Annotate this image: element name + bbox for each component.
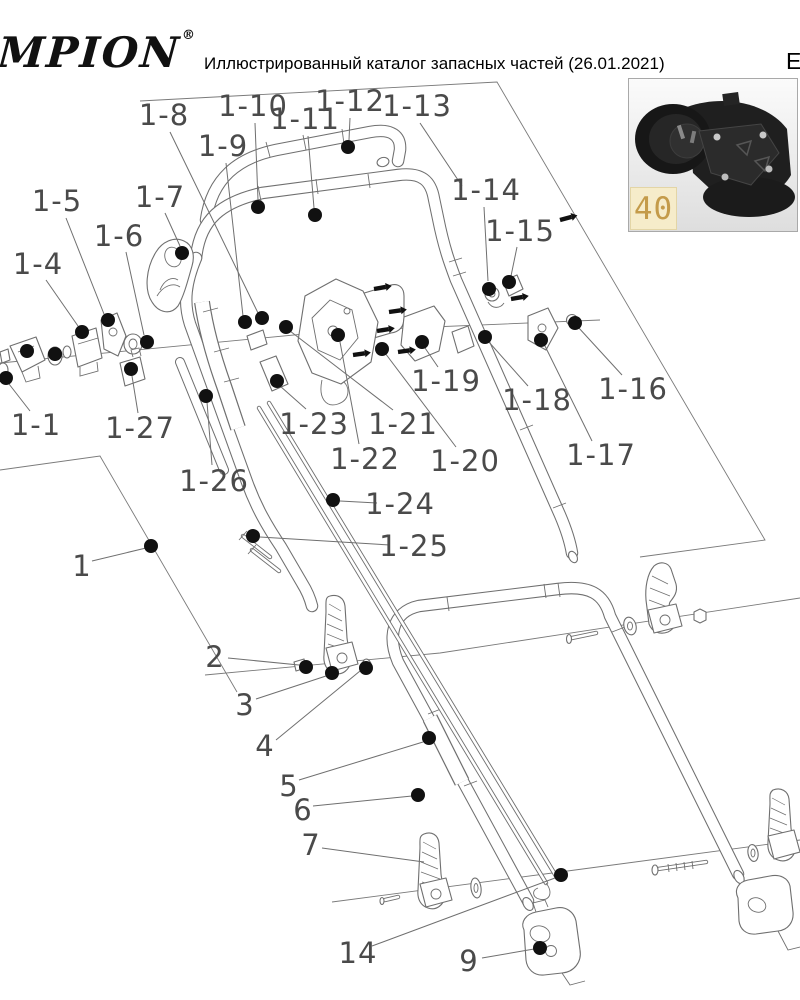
leader-line: [228, 658, 299, 665]
bottom-left-cam-assembly: [380, 833, 482, 909]
part-dot: [144, 539, 158, 553]
part-label: 1-21: [368, 407, 438, 441]
part-label: 6: [293, 793, 312, 827]
cable-bracket: [452, 326, 474, 353]
part-dot: [124, 362, 138, 376]
part-label: 1-22: [330, 442, 400, 476]
part-dot: [140, 335, 154, 349]
leader-line: [313, 796, 412, 806]
leader-line: [9, 384, 30, 411]
part-label: 1-7: [135, 180, 185, 214]
part-dot: [175, 246, 189, 260]
part-label: 1-15: [485, 214, 555, 248]
leader-line: [299, 742, 423, 780]
screw-icon: [559, 211, 578, 223]
part-dot: [101, 313, 115, 327]
grip-tube-end-cap: [376, 156, 390, 168]
part-label: 1-17: [566, 438, 636, 472]
part-dot: [554, 868, 568, 882]
part-label: 9: [459, 944, 478, 978]
part-dot: [75, 325, 89, 339]
part-9-bracket: [523, 900, 585, 985]
part-dot: [502, 275, 516, 289]
part-dot: [422, 731, 436, 745]
part-dot: [20, 344, 34, 358]
right-cam-assembly: [567, 563, 707, 644]
catalog-page: MPION® Иллюстрированный каталог запасных…: [0, 0, 800, 1000]
screw-tip: [522, 292, 529, 301]
part-dot: [415, 335, 429, 349]
exploded-diagram: 1-81-91-101-111-121-131-71-51-61-41-141-…: [0, 0, 800, 1000]
part-dot: [482, 282, 496, 296]
part-label: 1-6: [94, 219, 144, 253]
part-label: 14: [339, 936, 378, 970]
part-label: 3: [235, 688, 254, 722]
part-dot: [246, 529, 260, 543]
part-label: 1-23: [279, 407, 349, 441]
part-dot: [341, 140, 355, 154]
washer: [747, 844, 760, 862]
part-dot: [375, 342, 389, 356]
part-dot: [534, 333, 548, 347]
part-label: 1-25: [379, 529, 449, 563]
part-dot: [359, 661, 373, 675]
part-dot: [299, 660, 313, 674]
carriage-bolt-head: [652, 865, 658, 875]
part-dot: [326, 493, 340, 507]
part-label: 1: [72, 549, 91, 583]
part-label: 7: [301, 828, 320, 862]
part-dot: [533, 941, 547, 955]
part-dot: [279, 320, 293, 334]
part-dot: [568, 316, 582, 330]
bottom-right-hardware: [652, 789, 800, 950]
leader-line: [322, 848, 424, 862]
leader-line: [280, 386, 306, 409]
leader-line: [578, 327, 622, 375]
part-label: 1-24: [365, 487, 435, 521]
leader-line: [126, 252, 144, 335]
nut: [694, 609, 706, 623]
part-dot: [325, 666, 339, 680]
part-label: 1-8: [139, 98, 189, 132]
part-label: 1-27: [105, 411, 175, 445]
part-dot: [478, 330, 492, 344]
part-label: 1-14: [451, 173, 521, 207]
part-label: 1-4: [13, 247, 63, 281]
part-dot: [251, 200, 265, 214]
part-label: 1-5: [32, 184, 82, 218]
part-label: 1-12: [315, 84, 385, 118]
part-dot: [411, 788, 425, 802]
washer: [470, 877, 483, 898]
leader-line: [46, 280, 78, 326]
part-dot: [255, 311, 269, 325]
bolt-head: [567, 635, 572, 644]
part-dot: [199, 389, 213, 403]
screw-shaft: [559, 215, 572, 222]
part-label: 4: [255, 729, 274, 763]
part-label: 1-26: [179, 464, 249, 498]
part-label: 1-1: [11, 408, 61, 442]
part-label: 1-18: [502, 383, 572, 417]
part-label: 2: [205, 640, 224, 674]
leader-line: [511, 247, 517, 276]
part-label: 1-19: [411, 364, 481, 398]
tube-clip: [247, 330, 267, 350]
leader-line: [276, 671, 360, 740]
part-label: 1-16: [598, 372, 668, 406]
part-dot: [270, 374, 284, 388]
part-label: 1-20: [430, 444, 500, 478]
screw-shaft: [511, 295, 524, 301]
part-label: 1-9: [198, 129, 248, 163]
leader-line: [92, 548, 146, 561]
leader-line: [256, 676, 326, 699]
leader-line: [226, 163, 243, 316]
part-dot: [238, 315, 252, 329]
part-dot: [0, 371, 13, 385]
height-bracket: [736, 875, 793, 934]
part-dot: [331, 328, 345, 342]
small-bolt: [380, 898, 384, 905]
part-dot: [308, 208, 322, 222]
part-dot: [48, 347, 62, 361]
washer-part: [63, 346, 71, 358]
part-label: 1-13: [382, 89, 452, 123]
